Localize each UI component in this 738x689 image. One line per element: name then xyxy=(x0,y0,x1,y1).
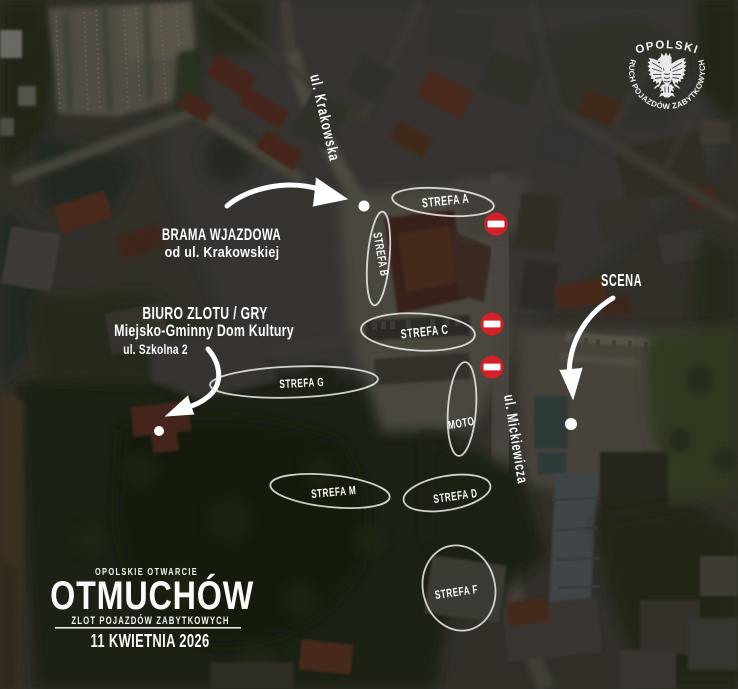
svg-text:Miejsko-Gminny Dom Kultury: Miejsko-Gminny Dom Kultury xyxy=(114,322,294,340)
svg-text:ul. Szkolna 2: ul. Szkolna 2 xyxy=(123,342,188,358)
svg-text:od ul. Krakowskiej: od ul. Krakowskiej xyxy=(165,243,280,260)
svg-text:BRAMA WJAZDOWA: BRAMA WJAZDOWA xyxy=(162,226,281,245)
svg-text:ZLOT POJAZDÓW ZABYTKOWYCH: ZLOT POJAZDÓW ZABYTKOWYCH xyxy=(71,614,229,628)
svg-text:STREFA G: STREFA G xyxy=(279,376,324,391)
svg-text:OTMUCHÓW: OTMUCHÓW xyxy=(50,572,254,618)
svg-text:SCENA: SCENA xyxy=(601,272,642,291)
svg-text:BIURO ZLOTU / GRY: BIURO ZLOTU / GRY xyxy=(142,304,267,324)
svg-text:11 KWIETNIA 2026: 11 KWIETNIA 2026 xyxy=(90,632,209,652)
